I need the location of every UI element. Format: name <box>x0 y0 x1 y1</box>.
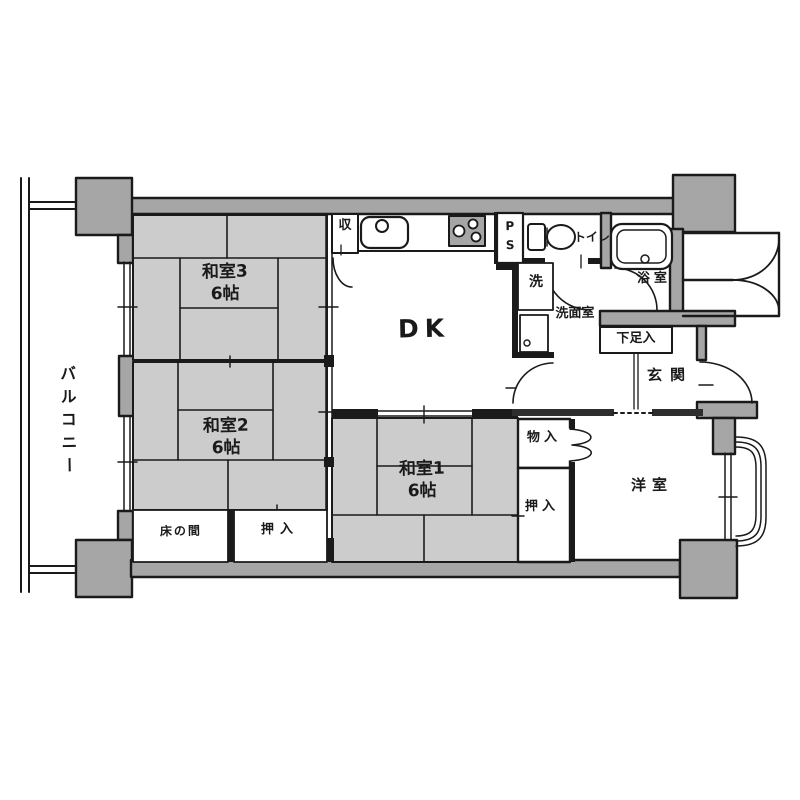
kitchen-sink <box>361 217 408 248</box>
washitsu2-name: 和室2 <box>171 414 281 438</box>
label-oshiire-washitsu2: 押入 <box>253 522 307 539</box>
label-tokonoma: 床の間 <box>148 523 214 539</box>
bathtub <box>611 224 672 269</box>
label-shoe-cabinet: 下足入 <box>600 330 672 348</box>
floorplan: バルコニー 和室3 6帖 和室2 6帖 和室1 6帖 DK 洋室 玄関 浴室 洗… <box>0 0 800 800</box>
label-western-room: 洋室 <box>622 475 682 495</box>
front-door-arc <box>700 362 752 403</box>
stove <box>449 216 485 246</box>
label-washitsu2: 和室2 6帖 <box>171 414 282 460</box>
washitsu1-name: 和室1 <box>367 457 477 481</box>
label-washitsu1: 和室1 6帖 <box>367 457 478 503</box>
washitsu3-size: 6帖 <box>170 282 280 306</box>
label-balcony: バルコニー <box>56 337 79 507</box>
label-pipe-space: P S <box>498 217 523 255</box>
label-dk: DK <box>388 312 461 345</box>
label-kitchen-closet: 収 <box>331 218 359 235</box>
label-laundry-space: 洗 <box>521 274 551 292</box>
monoire-bifold-door <box>570 429 591 461</box>
washitsu2-size: 6帖 <box>171 436 281 460</box>
washitsu1-size: 6帖 <box>367 479 477 503</box>
label-washitsu3: 和室3 6帖 <box>170 260 281 306</box>
washbasin <box>520 315 548 352</box>
label-monoire: 物入 <box>521 430 567 447</box>
label-bathroom: 浴室 <box>631 271 677 288</box>
kitchen-closet-door-arc <box>333 258 352 287</box>
floorplan-drawing <box>0 0 800 800</box>
porch-double-doors <box>683 233 779 316</box>
label-oshiire-washitsu1: 押入 <box>519 499 565 516</box>
washroom-door-arc <box>513 363 553 403</box>
label-toilet: トイレ <box>571 230 613 246</box>
toilet-fixture <box>528 224 575 250</box>
label-entrance: 玄関 <box>640 365 700 385</box>
washitsu3-name: 和室3 <box>170 260 280 284</box>
bathroom-area <box>611 224 672 310</box>
label-washroom: 洗面室 <box>547 306 603 323</box>
